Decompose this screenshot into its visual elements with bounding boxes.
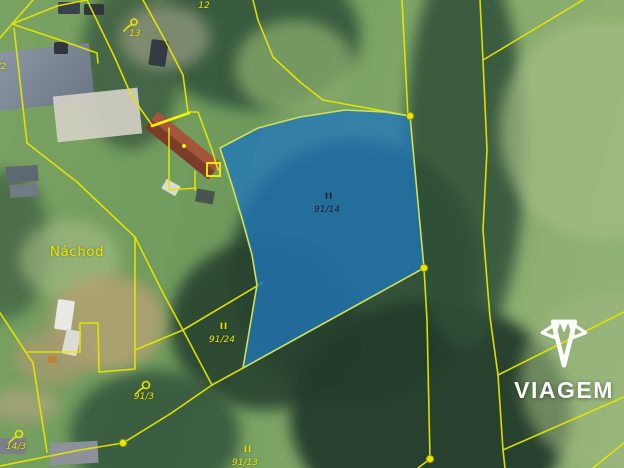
parcel-use-label-91-13: II	[244, 445, 252, 455]
parcel-label-13: 13	[129, 29, 140, 39]
boundary-line	[135, 283, 262, 350]
viagem-gem-icon	[535, 318, 593, 371]
watermark-brand-text: VIAGEM	[500, 377, 624, 404]
cadastral-map: 12 13 9/2 Náchod II 91/24 II 91/14 91/3 …	[0, 0, 624, 468]
watermark: VIAGEM	[500, 318, 624, 404]
parcel-label-91-3: 91/3	[134, 392, 154, 402]
boundary-line	[402, 0, 408, 117]
boundary-line	[0, 0, 33, 38]
boundary-line	[0, 313, 47, 452]
parcel-use-label-91-24: II	[220, 322, 228, 332]
roof-point-marker	[182, 144, 186, 148]
boundary-line	[169, 128, 196, 190]
parcel-label-12: 12	[198, 1, 209, 11]
parcel-label-14-3: 14/3	[6, 442, 26, 452]
parcel-label-91-14: 91/14	[314, 205, 340, 215]
boundary-line	[593, 443, 624, 468]
boundary-line	[483, 0, 583, 60]
boundary-line	[188, 112, 218, 170]
parcel-label-91-24: 91/24	[209, 335, 235, 345]
highlighted-parcel-91-14	[220, 110, 424, 368]
building-symbol-13	[131, 19, 137, 25]
boundary-line	[143, 0, 188, 112]
parcel-label-91-13: 91/13	[232, 458, 258, 468]
boundary-line	[28, 323, 135, 372]
parcel-use-label-91-14: II	[325, 192, 333, 202]
boundary-line	[12, 24, 98, 63]
parcel-label-9-2: 9/2	[0, 62, 6, 72]
boundary-line	[503, 397, 624, 450]
boundary-line	[253, 0, 410, 116]
boundary-line	[135, 237, 212, 385]
boundary-line	[418, 268, 430, 468]
town-label: Náchod	[50, 247, 104, 257]
boundary-line	[87, 0, 152, 125]
boundary-line	[14, 28, 135, 237]
